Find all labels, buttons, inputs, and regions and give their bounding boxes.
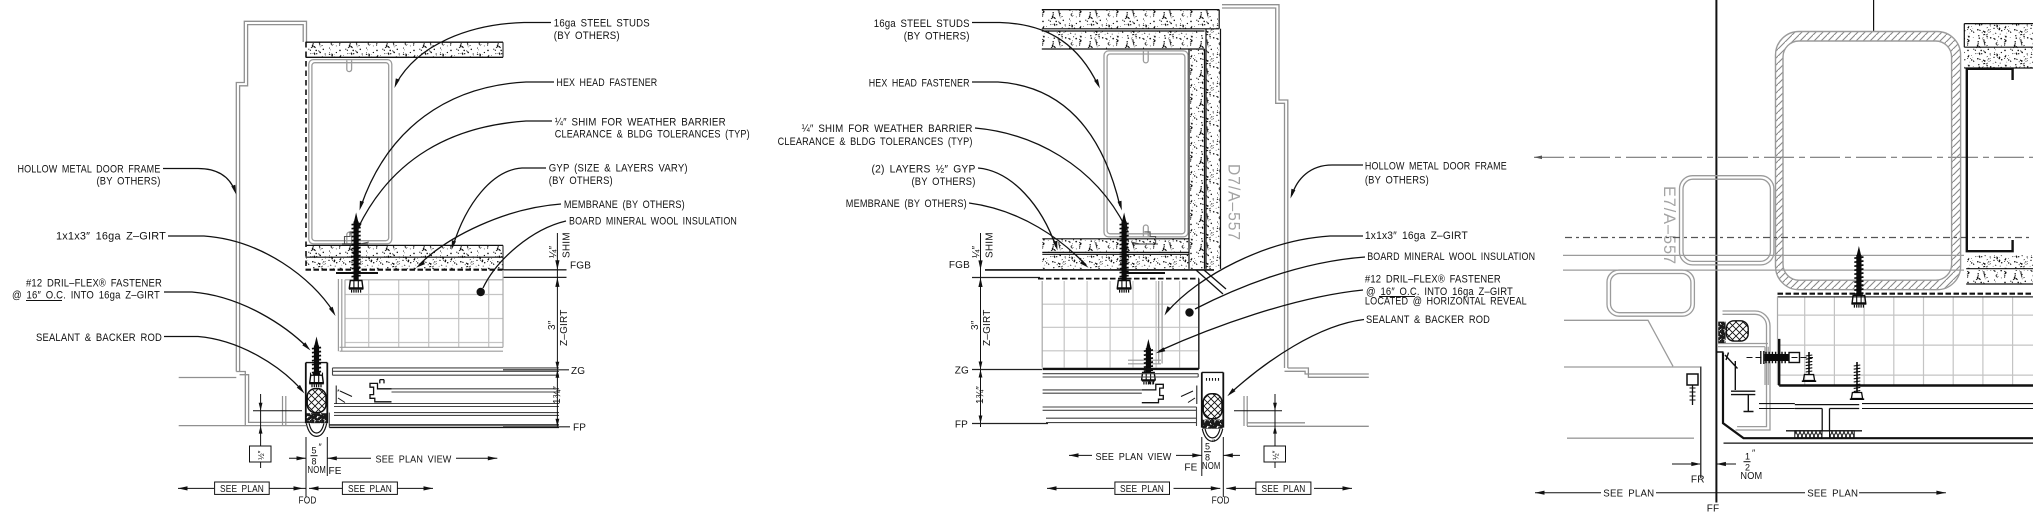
- svg-text:FR: FR: [1691, 475, 1705, 486]
- svg-text:FGB: FGB: [570, 260, 591, 271]
- svg-text:(BY OTHERS): (BY OTHERS): [554, 30, 620, 42]
- svg-text:″: ″: [1212, 438, 1216, 448]
- svg-text:HOLLOW METAL DOOR FRAME: HOLLOW METAL DOOR FRAME: [18, 164, 161, 176]
- svg-text:MEMBRANE (BY OTHERS): MEMBRANE (BY OTHERS): [846, 198, 967, 210]
- svg-text:5: 5: [312, 446, 317, 456]
- svg-text:″: ″: [1752, 448, 1756, 458]
- svg-text:BOARD MINERAL WOOL INSULATION: BOARD MINERAL WOOL INSULATION: [569, 216, 737, 228]
- svg-text:E7/A–557: E7/A–557: [1660, 186, 1678, 265]
- svg-text:*: *: [337, 389, 340, 396]
- svg-text:D7/A–557: D7/A–557: [1225, 164, 1243, 241]
- svg-text:3″: 3″: [970, 320, 981, 330]
- svg-text:SEE PLAN: SEE PLAN: [220, 484, 264, 495]
- svg-text:1¾″: 1¾″: [552, 386, 563, 404]
- svg-text:¼″ SHIM FOR WEATHER BARRIER: ¼″ SHIM FOR WEATHER BARRIER: [555, 116, 726, 128]
- svg-text:NOM: NOM: [1740, 471, 1762, 482]
- svg-text:Z–GIRT: Z–GIRT: [982, 309, 993, 346]
- svg-text:¼″: ¼″: [970, 245, 982, 258]
- svg-text:@ 16″ O.C. INTO 16ga Z–GIRT: @ 16″ O.C. INTO 16ga Z–GIRT: [12, 290, 160, 302]
- svg-text:¼″ SHIM FOR WEATHER BARRIER: ¼″ SHIM FOR WEATHER BARRIER: [802, 123, 973, 135]
- svg-text:FP: FP: [955, 419, 968, 430]
- svg-text:(BY OTHERS): (BY OTHERS): [1365, 174, 1429, 186]
- svg-text:ZG: ZG: [571, 366, 585, 377]
- svg-text:BOARD MINERAL WOOL INSULATION: BOARD MINERAL WOOL INSULATION: [1367, 251, 1535, 263]
- svg-text:MEMBRANE (BY OTHERS): MEMBRANE (BY OTHERS): [564, 199, 685, 211]
- svg-text:LOCATED @ HORIZONTAL REVEAL: LOCATED @ HORIZONTAL REVEAL: [1365, 295, 1527, 307]
- svg-text:1: 1: [1745, 452, 1750, 462]
- svg-text:#12 DRIL–FLEX® FASTENER: #12 DRIL–FLEX® FASTENER: [26, 278, 162, 290]
- svg-text:SEE PLAN: SEE PLAN: [1807, 489, 1858, 500]
- svg-text:SEALANT & BACKER ROD: SEALANT & BACKER ROD: [1366, 314, 1490, 326]
- svg-text:FE: FE: [329, 466, 342, 477]
- svg-text:3″: 3″: [547, 320, 558, 330]
- svg-text:NOM: NOM: [308, 465, 327, 476]
- svg-text:FOD: FOD: [299, 496, 317, 507]
- svg-text:1¾″: 1¾″: [975, 386, 986, 404]
- svg-text:SEE PLAN VIEW: SEE PLAN VIEW: [1096, 451, 1172, 463]
- svg-text:(BY OTHERS): (BY OTHERS): [912, 176, 976, 188]
- svg-text:GYP (SIZE & LAYERS VARY): GYP (SIZE & LAYERS VARY): [549, 163, 688, 175]
- svg-text:(BY OTHERS): (BY OTHERS): [904, 30, 970, 42]
- svg-text:HOLLOW METAL DOOR FRAME: HOLLOW METAL DOOR FRAME: [1365, 160, 1507, 172]
- svg-text:″: ″: [319, 442, 323, 452]
- svg-text:FP: FP: [573, 423, 586, 434]
- svg-text:FGB: FGB: [949, 260, 970, 271]
- svg-text:½″: ½″: [257, 450, 266, 460]
- svg-text:FOD: FOD: [1212, 496, 1230, 507]
- svg-text:HEX HEAD FASTENER: HEX HEAD FASTENER: [556, 77, 657, 89]
- svg-text:(BY OTHERS): (BY OTHERS): [549, 175, 613, 187]
- svg-text:SEE PLAN: SEE PLAN: [1262, 484, 1306, 495]
- svg-text:SEE PLAN: SEE PLAN: [1120, 484, 1164, 495]
- svg-text:¼″: ¼″: [547, 245, 559, 258]
- svg-text:HEX HEAD FASTENER: HEX HEAD FASTENER: [869, 78, 970, 90]
- svg-text:16ga STEEL STUDS: 16ga STEEL STUDS: [554, 18, 650, 30]
- svg-text:SHIM: SHIM: [985, 232, 996, 258]
- svg-text:5: 5: [1205, 442, 1210, 452]
- svg-text:½″: ½″: [1272, 450, 1281, 460]
- svg-text:16ga STEEL STUDS: 16ga STEEL STUDS: [874, 18, 970, 30]
- svg-text:SEE PLAN VIEW: SEE PLAN VIEW: [376, 454, 452, 466]
- svg-text:NOM: NOM: [1202, 461, 1221, 472]
- svg-text:#12 DRIL–FLEX® FASTENER: #12 DRIL–FLEX® FASTENER: [1365, 273, 1501, 285]
- svg-text:1x1x3″ 16ga Z–GIRT: 1x1x3″ 16ga Z–GIRT: [1365, 230, 1468, 242]
- svg-text:FE: FE: [1184, 463, 1197, 474]
- svg-text:CLEARANCE & BLDG TOLERANCES (T: CLEARANCE & BLDG TOLERANCES (TYP): [778, 136, 973, 148]
- svg-text:CLEARANCE & BLDG TOLERANCES (T: CLEARANCE & BLDG TOLERANCES (TYP): [555, 128, 750, 140]
- svg-text:1x1x3″ 16ga Z–GIRT: 1x1x3″ 16ga Z–GIRT: [56, 231, 166, 243]
- svg-text:SEALANT & BACKER ROD: SEALANT & BACKER ROD: [36, 332, 162, 344]
- svg-text:FF: FF: [1707, 504, 1720, 515]
- svg-text:ZG: ZG: [955, 366, 969, 377]
- svg-text:SHIM: SHIM: [562, 232, 573, 258]
- svg-text:(BY OTHERS): (BY OTHERS): [97, 176, 161, 188]
- svg-text:SEE PLAN: SEE PLAN: [348, 484, 392, 495]
- svg-text:Z–GIRT: Z–GIRT: [559, 309, 570, 346]
- svg-text:SEE PLAN: SEE PLAN: [1603, 489, 1654, 500]
- svg-text:(2) LAYERS ½″ GYP: (2) LAYERS ½″ GYP: [872, 163, 976, 175]
